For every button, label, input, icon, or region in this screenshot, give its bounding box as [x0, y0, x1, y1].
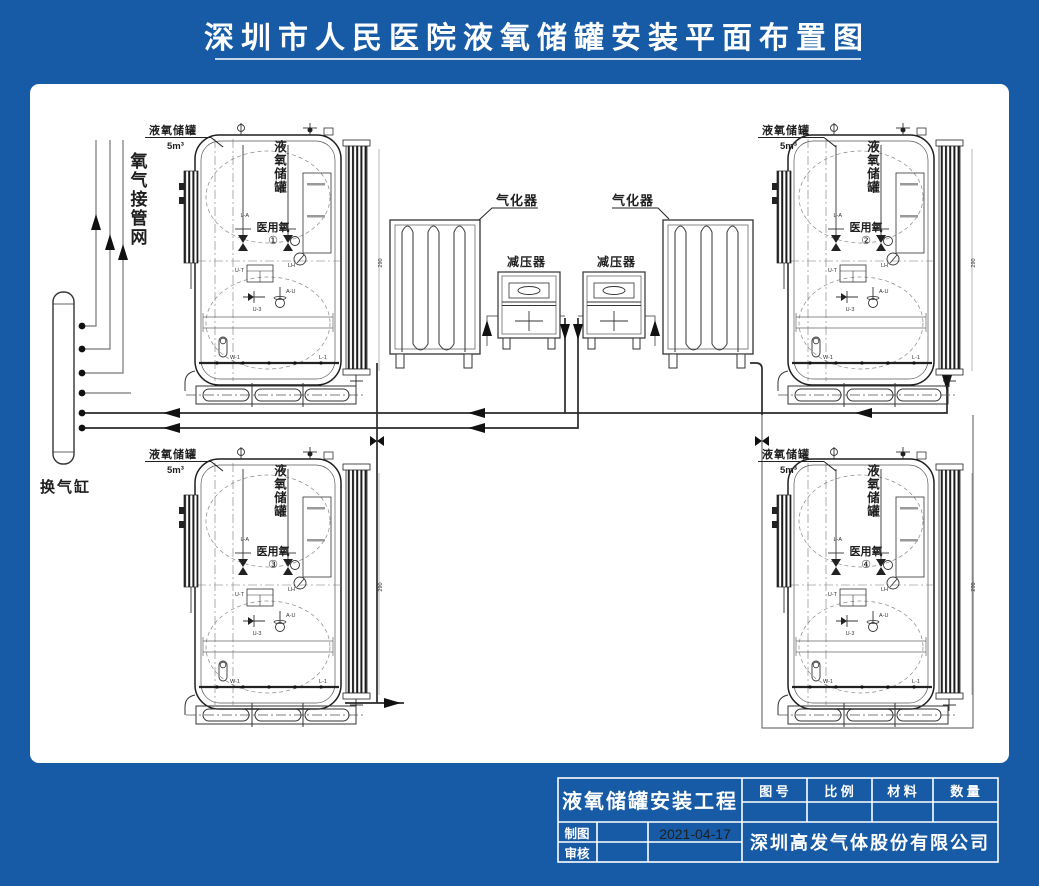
tank-number: ①	[268, 235, 278, 247]
vaporizer-label: 气化器	[496, 193, 538, 208]
cad-canvas: 290	[0, 0, 1039, 886]
col-header-material: 材 料	[887, 784, 917, 799]
tank-number: ④	[861, 559, 871, 571]
regulator-label: 减压器	[507, 254, 546, 269]
regulator-label: 减压器	[597, 254, 636, 269]
drawn-by-label: 制图	[564, 826, 589, 841]
checked-by-label: 审核	[564, 846, 590, 861]
tank-number: ②	[861, 235, 871, 247]
drawing-date: 2021-04-17	[659, 826, 731, 842]
col-header-drawing-no: 图 号	[759, 784, 789, 799]
col-header-scale: 比 例	[824, 784, 854, 799]
vaporizer-label: 气化器	[612, 193, 654, 208]
company-name: 深圳高发气体股份有限公司	[750, 832, 990, 853]
title-bar: 深圳市人民医院液氧储罐安装平面布置图	[204, 21, 870, 59]
tank-number: ③	[268, 559, 278, 571]
oxygen-network-label: 氧气接管网	[128, 151, 149, 247]
exchange-cylinder-label: 换气缸	[40, 478, 91, 496]
drawing-panel	[30, 84, 1009, 763]
project-name: 液氧储罐安装工程	[562, 789, 738, 813]
col-header-quantity: 数 量	[950, 784, 980, 799]
drawing-sheet: 290	[0, 0, 1039, 886]
page-title: 深圳市人民医院液氧储罐安装平面布置图	[204, 21, 870, 55]
